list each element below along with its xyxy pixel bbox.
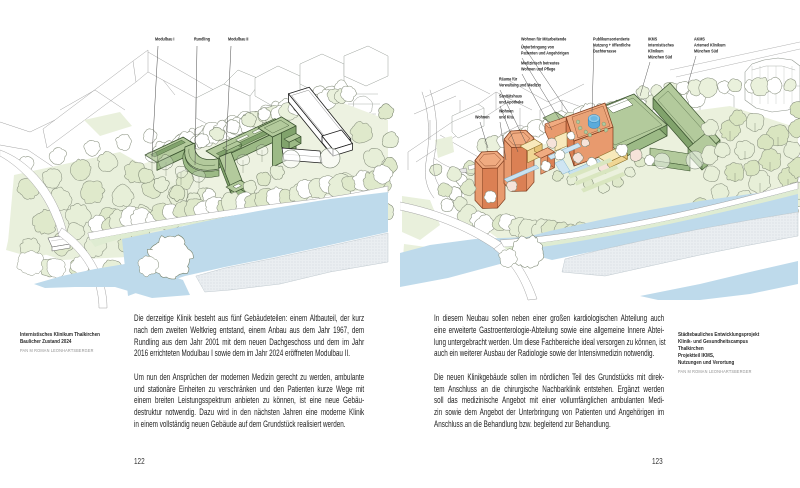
svg-text:Internistisches: Internistisches [648, 42, 674, 48]
svg-text:Dachterrasse: Dachterrasse [593, 48, 617, 54]
svg-text:Wohnen: Wohnen [499, 108, 514, 114]
svg-text:Sanitätshaus: Sanitätshaus [499, 93, 522, 99]
svg-text:Verwaltung und Medizin: Verwaltung und Medizin [499, 82, 541, 88]
svg-text:Patienten und Angehörigen: Patienten und Angehörigen [521, 50, 569, 56]
svg-text:Nutzung + öffentliche: Nutzung + öffentliche [593, 42, 631, 48]
svg-text:AKMS: AKMS [694, 36, 705, 42]
svg-text:Publikumsorientierte: Publikumsorientierte [593, 36, 630, 42]
svg-text:und Kita: und Kita [499, 114, 514, 120]
svg-text:IKMS: IKMS [648, 36, 657, 42]
svg-text:Klinikum: Klinikum [648, 48, 664, 54]
svg-text:München Süd: München Süd [648, 54, 672, 60]
svg-text:Unterbringung von: Unterbringung von [521, 44, 554, 50]
svg-text:Wohnen: Wohnen [475, 114, 490, 120]
svg-text:Wohnen und Pflege: Wohnen und Pflege [521, 66, 556, 72]
svg-text:Modulbau II: Modulbau II [228, 36, 248, 42]
svg-text:Modulbau I: Modulbau I [155, 36, 174, 42]
svg-text:Wohnen für Mitarbeitende: Wohnen für Mitarbeitende [521, 36, 567, 42]
svg-text:Artemed Klinikum: Artemed Klinikum [694, 42, 726, 48]
svg-text:Medizinisch betreutes: Medizinisch betreutes [521, 60, 560, 66]
svg-text:Räume für: Räume für [499, 76, 517, 82]
svg-text:und Apotheke: und Apotheke [499, 99, 524, 105]
svg-text:Rundling: Rundling [194, 36, 210, 42]
svg-text:München Süd: München Süd [694, 48, 718, 54]
